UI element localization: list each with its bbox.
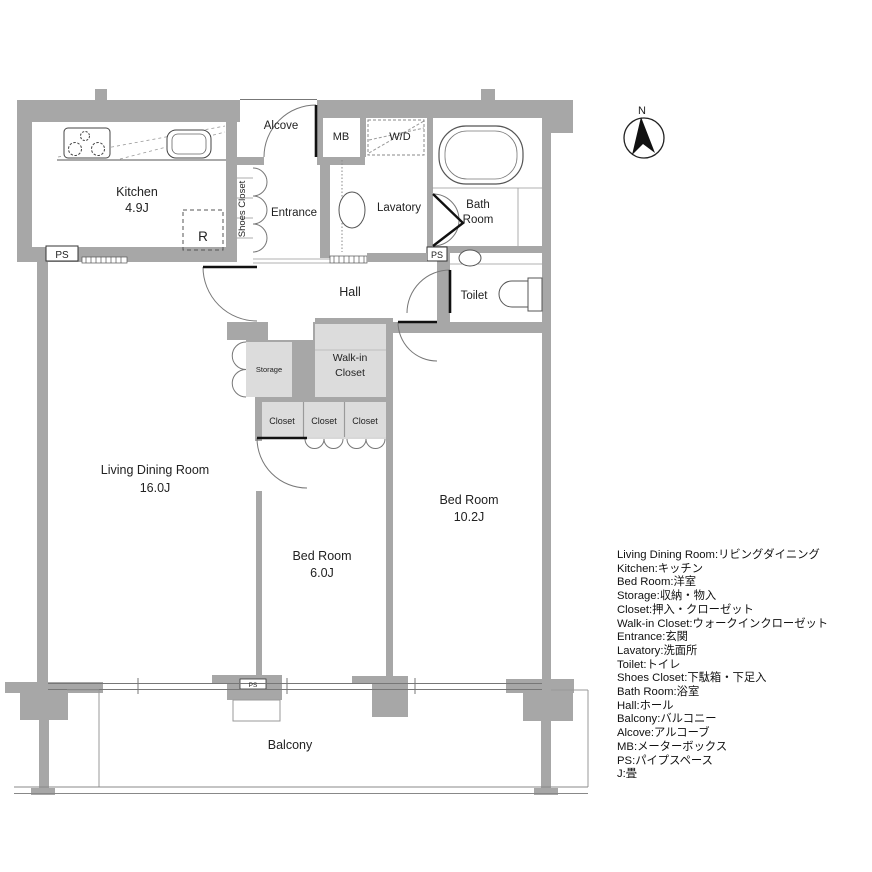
bath-fixtures [432,126,542,246]
lavatory-sink-icon [339,192,365,228]
legend-line: PS:パイプスペース [617,755,828,769]
bath-folding-door [433,194,463,246]
shoes-closet-label: Shoes Closet [237,180,248,237]
legend-line: Bath Room:浴室 [617,686,828,700]
shoes-closet-door-arc [253,168,267,196]
meter-box-label: MB [333,131,350,143]
legend-line: Closet:押入・クローゼット [617,604,828,618]
walk-in-closet-label-2: Closet [335,367,365,379]
lavatory-label: Lavatory [377,202,421,214]
legend-line: Shoes Closet:下駄箱・下足入 [617,672,828,686]
closet2-label: Closet [311,416,337,426]
storage-label: Storage [256,365,282,374]
legend-line: Storage:収納・物入 [617,590,828,604]
legend-line: Kitchen:キッチン [617,563,828,577]
legend-line: Toilet:トイレ [617,659,828,673]
bath-room-label-2: Room [463,214,494,226]
bath-room-label-1: Bath [466,199,490,211]
legend: Living Dining Room:リビングダイニング Kitchen:キッチ… [617,549,828,782]
legend-line: Walk-in Closet:ウォークインクローゼット [617,618,828,632]
bedroom6-size: 6.0J [310,566,334,580]
compass-needle-icon [632,117,655,155]
kitchen-label: Kitchen [116,185,158,199]
closet-door-arc [366,439,385,449]
washer-dryer-label: W/D [389,131,410,143]
closet-door-arc [324,439,343,449]
balcony-label: Balcony [268,738,313,752]
legend-line: Hall:ホール [617,700,828,714]
compass-north-label: N [638,105,646,117]
legend-line: Balcony:バルコニー [617,713,828,727]
bedroom10-size: 10.2J [454,510,485,524]
entrance-label: Entrance [271,207,317,219]
legend-line: Alcove:アルコーブ [617,727,828,741]
hall-label: Hall [339,285,361,299]
bedroom10-label: Bed Room [439,493,498,507]
legend-line: Living Dining Room:リビングダイニング [617,549,828,563]
toilet-tank-icon [528,278,542,311]
storage-door-arc [232,342,246,370]
ps-label-balcony: PS [249,682,258,689]
legend-line: J:畳 [617,768,828,782]
walk-in-closet-label-1: Walk-in [333,352,368,364]
closet3-label: Closet [352,416,378,426]
refrigerator-label: R [198,229,208,244]
bath-door-arc [433,194,459,246]
closet-door-arc [305,439,324,449]
kitchen-size: 4.9J [125,201,149,215]
wic-upper-notch [268,321,313,340]
floor-plan-page: N Kitchen 4.9J Living Dining Room 16.0J … [0,0,872,872]
bathtub-icon [439,126,523,184]
bedroom6-label: Bed Room [292,549,351,563]
toilet-bowl-icon [499,281,528,307]
toilet-sink-icon [459,250,481,266]
legend-line: Entrance:玄関 [617,631,828,645]
shoes-closet-door-arc [253,224,267,252]
closet1-label: Closet [269,416,295,426]
alcove-label: Alcove [264,120,299,132]
legend-line: MB:メーターボックス [617,741,828,755]
closet-door-arc [347,439,366,449]
bedroom6-door-arc [257,438,307,488]
ps-label-kitchen: PS [55,250,69,261]
legend-line: Bed Room:洋室 [617,576,828,590]
storage-door-arc [232,370,246,398]
living-dining-size: 16.0J [140,481,171,495]
legend-line: Lavatory:洗面所 [617,645,828,659]
toilet-label: Toilet [461,290,489,302]
balcony-service-box [233,700,280,721]
compass: N [624,105,664,158]
living-door-arc [203,267,257,321]
shoes-closet-door-arc [253,196,267,224]
thin-lines [14,100,588,794]
ps-label-bath: PS [431,250,443,260]
living-dining-label: Living Dining Room [101,463,209,477]
